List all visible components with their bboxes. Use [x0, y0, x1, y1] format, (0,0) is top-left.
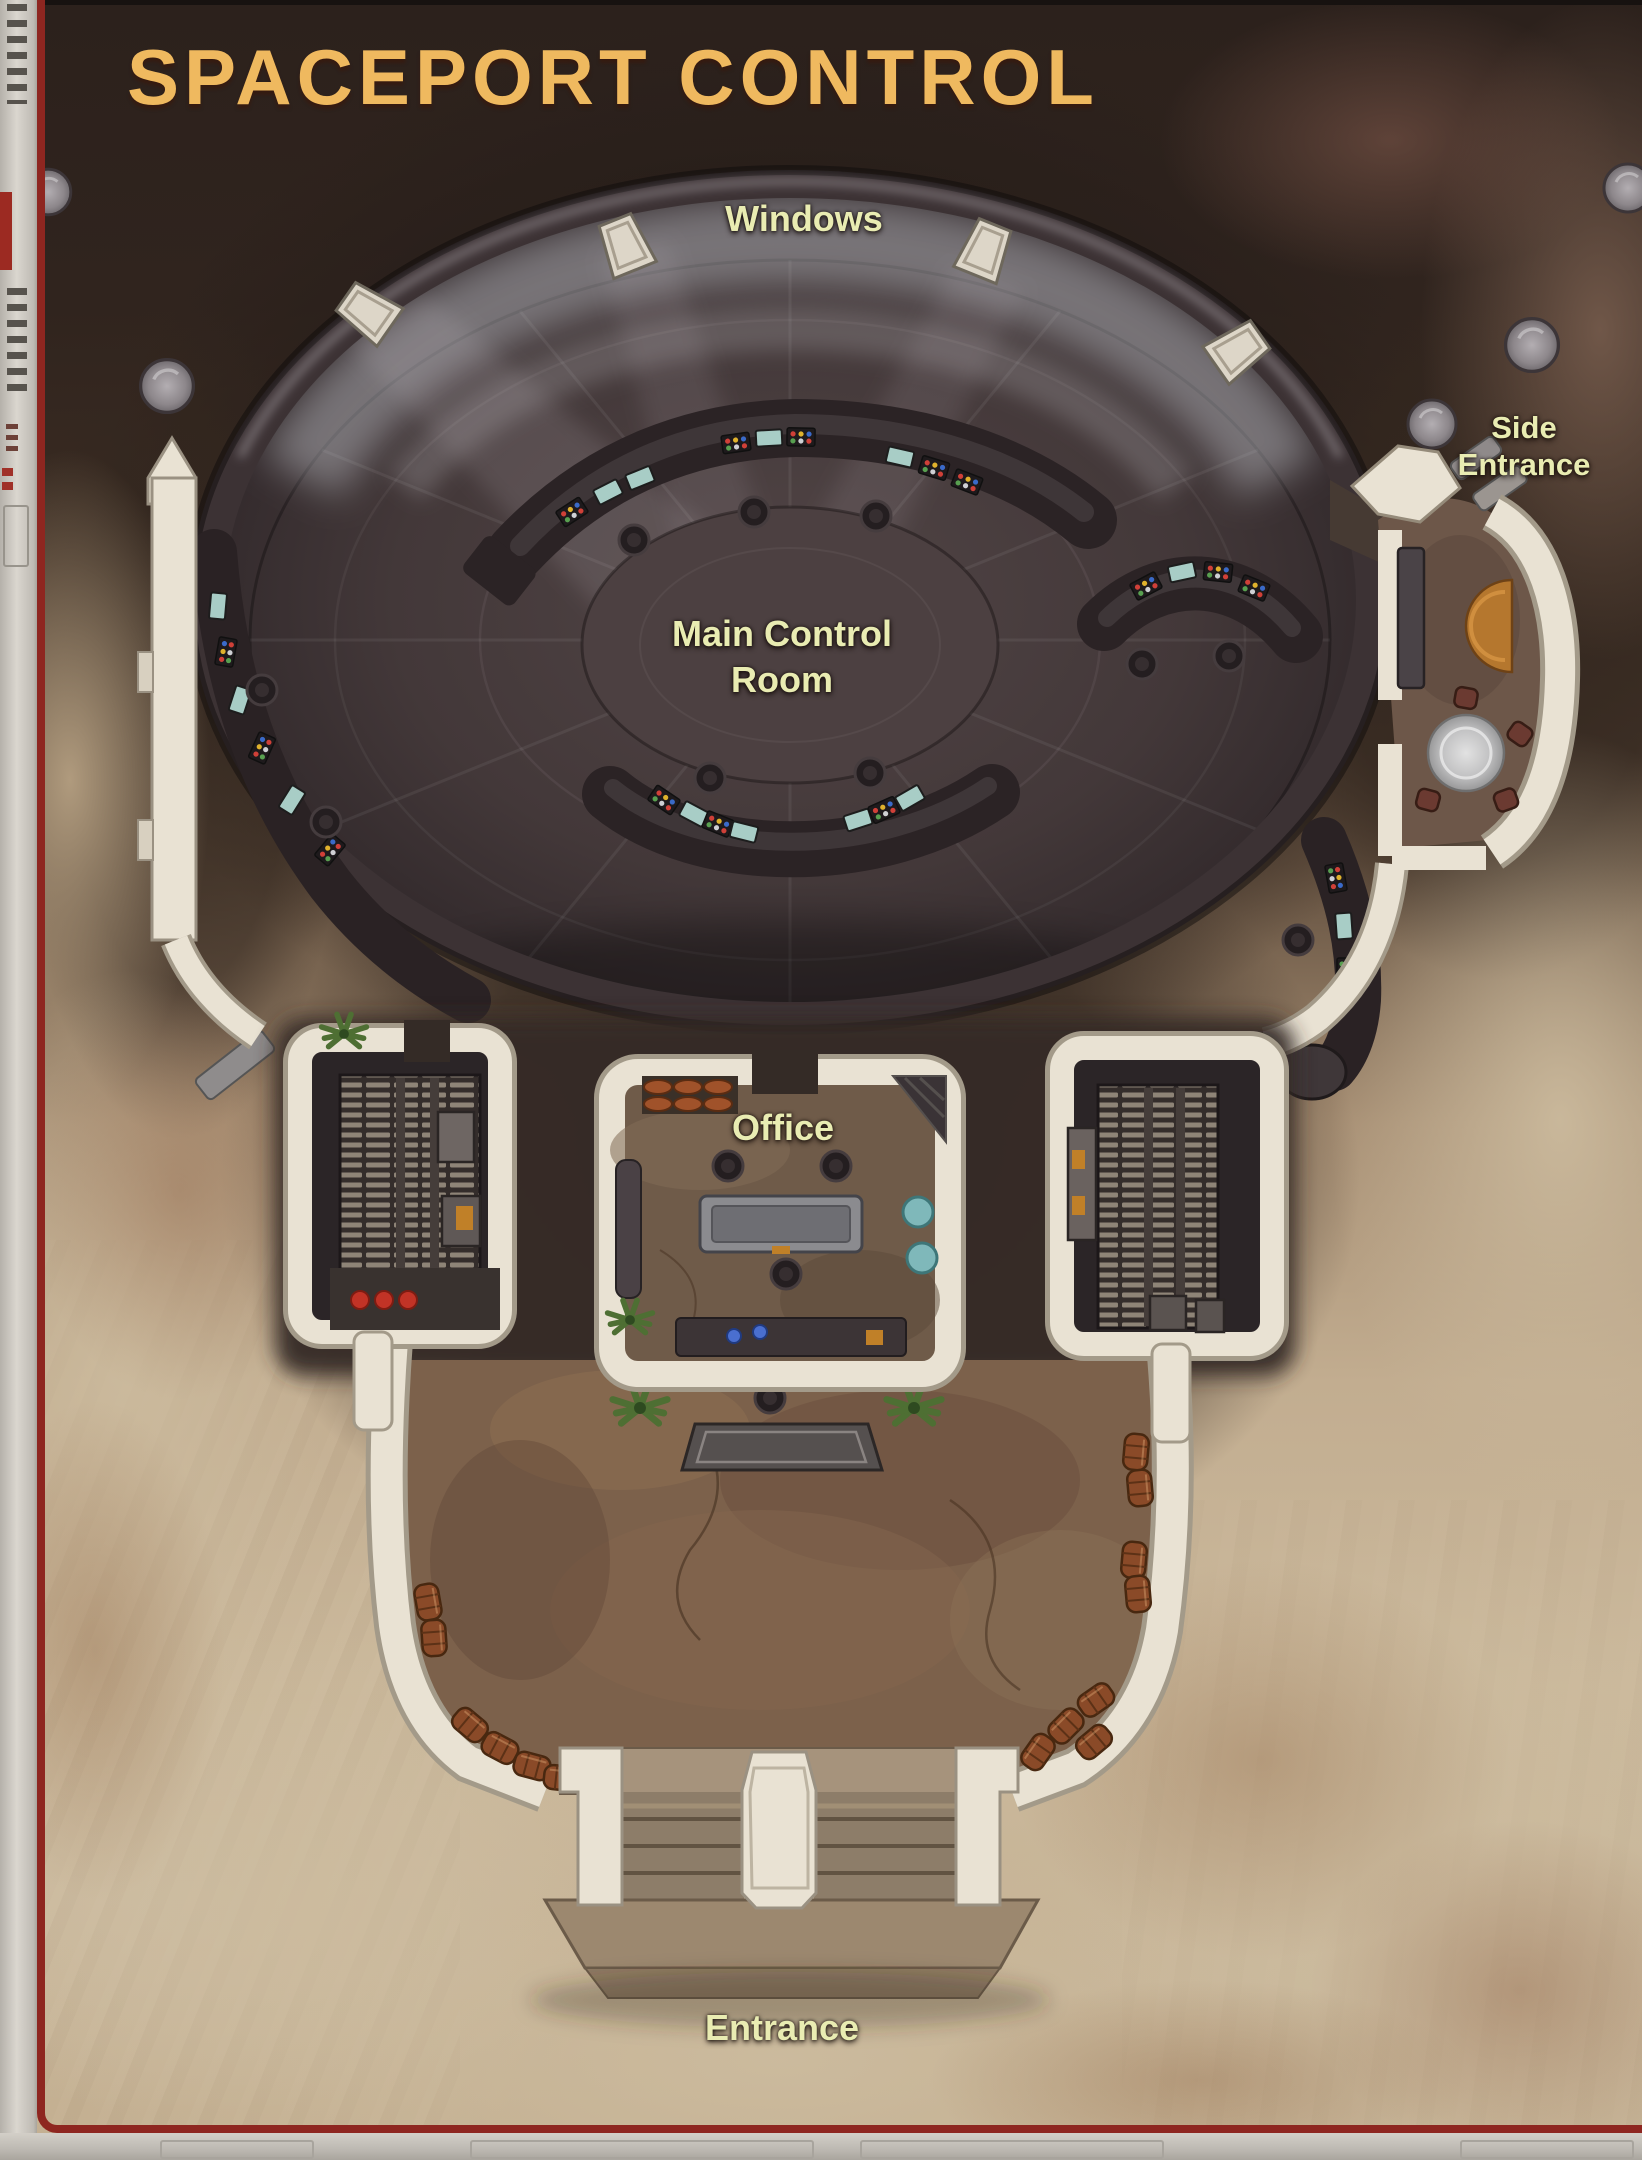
boulder-icon [141, 360, 194, 413]
spaceport-control-map-page: SPACEPORT CONTROL Windows Main Control R… [0, 0, 1642, 2160]
boulder-icon [1408, 400, 1456, 448]
vent-slots-icon [7, 4, 27, 104]
red-dashes [2, 468, 13, 494]
label-windows: Windows [725, 196, 883, 242]
page-edge-top [37, 0, 1642, 5]
label-line: Entrance [1458, 447, 1591, 482]
label-line: Main Control [672, 613, 892, 654]
alert-light [351, 1291, 369, 1309]
panel-outline [160, 2140, 314, 2159]
label-line: Side [1491, 410, 1556, 445]
page-edge-left [0, 0, 37, 2160]
stool [907, 1243, 937, 1273]
boulder-icon [1604, 164, 1642, 212]
round-table [1428, 715, 1504, 791]
alert-light [399, 1291, 417, 1309]
label-line: Room [731, 659, 833, 700]
alert-light [375, 1291, 393, 1309]
red-marker [0, 192, 12, 270]
panel-outline [860, 2140, 1164, 2159]
vent-slots-icon [7, 288, 27, 400]
counter [1398, 548, 1424, 688]
bench [616, 1160, 641, 1298]
map-artwork [0, 0, 1642, 2160]
label-main-control-room: Main Control Room [672, 611, 892, 703]
label-entrance: Entrance [705, 2005, 859, 2051]
page-edge-bottom [0, 2133, 1642, 2160]
stool [903, 1197, 933, 1227]
panel-outline [3, 505, 29, 567]
panel-outline [1460, 2140, 1634, 2159]
boulder-icon [1506, 319, 1559, 372]
panel-outline [470, 2140, 814, 2159]
entrance-hall [387, 1340, 1173, 1792]
label-side-entrance: Side Entrance [1458, 409, 1591, 483]
entrance-steps [530, 1748, 1050, 2028]
step-post-right [956, 1748, 1018, 1905]
office-room [608, 1050, 948, 1374]
map-title: SPACEPORT CONTROL [127, 32, 1099, 123]
tick-marks [6, 424, 18, 454]
floor-grate [1098, 1085, 1218, 1328]
label-office: Office [732, 1105, 834, 1151]
